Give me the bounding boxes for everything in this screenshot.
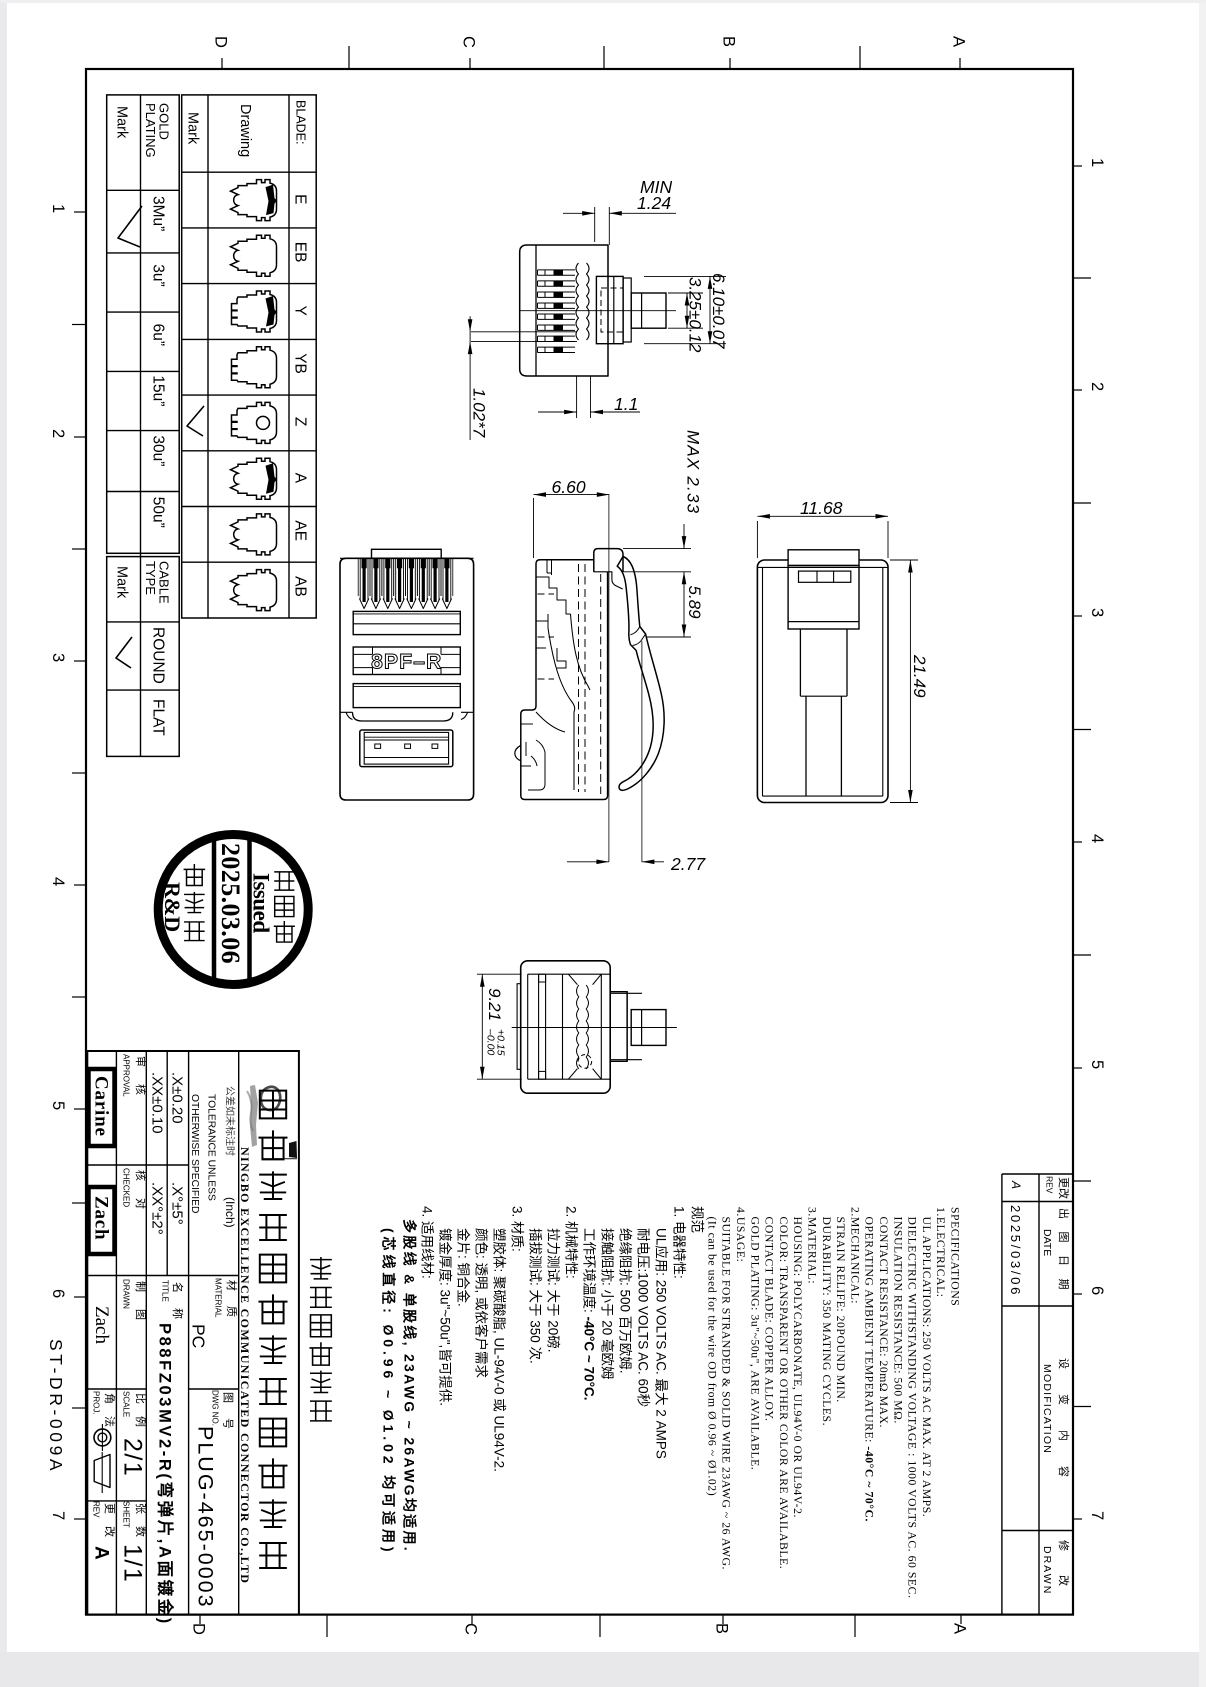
svg-text:Y: Y <box>292 306 309 316</box>
svg-text:30u”: 30u” <box>150 435 167 466</box>
svg-text:出图日期: 出图日期 <box>1057 1208 1071 1302</box>
svg-text:5: 5 <box>49 1101 67 1110</box>
svg-text:DIELECTRIC WITHSTANDING VOLTAG: DIELECTRIC WITHSTANDING VOLTAGE : 1000 V… <box>906 1217 919 1599</box>
svg-text:PROJ.: PROJ. <box>92 1391 101 1415</box>
svg-text:6u”: 6u” <box>150 324 167 346</box>
svg-text:材质: 材质 <box>225 1280 239 1332</box>
svg-text:多股线 & 单股线, 23AWG ~ 26AWG均适用.: 多股线 & 单股线, 23AWG ~ 26AWG均适用. <box>402 1219 418 1553</box>
svg-text:NINGBO EXCELLENCE COMMUNICATED: NINGBO EXCELLENCE COMMUNICATED CONNECTOR… <box>238 1147 252 1584</box>
svg-text:REV: REV <box>1045 1176 1055 1194</box>
svg-text:4. 适用线材:: 4. 适用线材: <box>420 1206 435 1279</box>
svg-text:3u”: 3u” <box>150 264 167 286</box>
svg-text:耐电压:1000 VOLTS AC. 60秒: 耐电压:1000 VOLTS AC. 60秒 <box>636 1228 651 1407</box>
svg-text:6.60: 6.60 <box>552 477 586 497</box>
svg-text:3.MATERIAL:: 3.MATERIAL: <box>806 1207 819 1284</box>
svg-text:B: B <box>713 1623 731 1634</box>
svg-text:11.68: 11.68 <box>800 498 843 518</box>
svg-text:DATE: DATE <box>1041 1229 1053 1256</box>
svg-text:PLATING: PLATING <box>143 103 158 158</box>
svg-text:REV: REV <box>92 1501 101 1518</box>
svg-text:.XX±0.10: .XX±0.10 <box>149 1072 166 1134</box>
svg-text:A: A <box>292 473 309 484</box>
svg-text:SPECIFICATIONS: SPECIFICATIONS <box>949 1207 962 1306</box>
svg-text:3. 材质:: 3. 材质: <box>510 1206 525 1252</box>
svg-text:修改: 修改 <box>1057 1540 1071 1610</box>
svg-text:C: C <box>460 36 478 48</box>
svg-text:R&D: R&D <box>160 882 185 932</box>
svg-text:FLAT: FLAT <box>150 699 167 736</box>
svg-text:7: 7 <box>49 1511 67 1520</box>
svg-text:(Inch): (Inch) <box>223 1197 237 1228</box>
svg-text:STRAIN RELIFE: 20POUND MIN.: STRAIN RELIFE: 20POUND MIN. <box>834 1217 847 1403</box>
svg-text:DRAWN: DRAWN <box>1041 1546 1053 1595</box>
svg-text:2.MECHANICAL:: 2.MECHANICAL: <box>848 1207 861 1304</box>
svg-text:INSULATION RESISTANCE: 500 MΩ.: INSULATION RESISTANCE: 500 MΩ. <box>891 1217 904 1424</box>
svg-text:C: C <box>462 1623 480 1635</box>
svg-text:Mark: Mark <box>185 112 201 145</box>
svg-text:CONTACT RESISTANCE: 20mΩ MAX.: CONTACT RESISTANCE: 20mΩ MAX. <box>877 1217 890 1429</box>
svg-text:.X±0.20: .X±0.20 <box>169 1072 186 1124</box>
svg-text:5: 5 <box>1088 1060 1106 1069</box>
svg-text:接触阻抗: 小于 20 毫欧姆: 接触阻抗: 小于 20 毫欧姆 <box>600 1228 616 1380</box>
svg-text:Z: Z <box>292 417 309 426</box>
svg-text:6: 6 <box>49 1289 67 1298</box>
svg-text:TYPE: TYPE <box>143 561 158 595</box>
svg-text:BLADE:: BLADE: <box>294 100 308 144</box>
svg-text:1/1: 1/1 <box>119 1544 147 1583</box>
svg-text:D: D <box>190 1623 208 1635</box>
svg-text:MAX 2.33: MAX 2.33 <box>684 430 703 514</box>
svg-text:更改: 更改 <box>103 1503 117 1549</box>
svg-text:HOUSING: POLYCARBONATE, UL94V-: HOUSING: POLYCARBONATE, UL94V-0 OR UL94V… <box>791 1217 804 1518</box>
svg-text:张数: 张数 <box>134 1503 147 1549</box>
svg-text:2/1: 2/1 <box>119 1438 147 1477</box>
svg-text:Drawing: Drawing <box>237 104 253 157</box>
svg-text:YB: YB <box>292 353 309 374</box>
svg-text:MATERIAL: MATERIAL <box>214 1278 223 1318</box>
svg-text:制图: 制图 <box>134 1281 147 1337</box>
svg-text:GOLD PLATING: 3u"~50u", ARE AV: GOLD PLATING: 3u"~50u", ARE AVAILABLE. <box>748 1217 761 1471</box>
svg-text:1: 1 <box>49 204 67 213</box>
svg-text:ROUND: ROUND <box>150 627 167 684</box>
svg-text:P88FZ03MV2-R(弯弹片,A面镀金): P88FZ03MV2-R(弯弹片,A面镀金) <box>156 1323 176 1626</box>
svg-text:9.21: 9.21 <box>485 988 504 1021</box>
svg-text:审核: 审核 <box>134 1056 148 1112</box>
svg-text:B: B <box>720 36 738 47</box>
svg-text:A: A <box>91 1546 112 1560</box>
svg-text:CHECKED: CHECKED <box>122 1168 131 1207</box>
svg-text:A: A <box>950 36 968 47</box>
svg-text:3.25±0.12: 3.25±0.12 <box>686 277 705 353</box>
svg-text:UL应用: 250 VOLTS AC. 最大 2 AMPS: UL应用: 250 VOLTS AC. 最大 2 AMPS <box>654 1228 670 1459</box>
svg-text:A: A <box>1009 1180 1023 1189</box>
svg-text:DURABILITY: 350 MATING CYCLES.: DURABILITY: 350 MATING CYCLES. <box>820 1217 833 1427</box>
svg-text:ST-DR-009A: ST-DR-009A <box>46 1339 66 1474</box>
svg-text:CONTACT BLADE: COPPER ALLOY.: CONTACT BLADE: COPPER ALLOY. <box>763 1217 776 1422</box>
svg-text:Mark: Mark <box>114 106 130 139</box>
svg-text:设变内容: 设变内容 <box>1057 1358 1071 1502</box>
svg-text:APPROVAL: APPROVAL <box>122 1054 131 1097</box>
svg-text:核对: 核对 <box>134 1170 148 1226</box>
svg-text:图号: 图号 <box>222 1392 235 1444</box>
svg-text:金片: 铜合金.: 金片: 铜合金. <box>456 1228 471 1307</box>
svg-text:AB: AB <box>292 576 309 597</box>
svg-text:颜色: 透明, 或依客户需求: 颜色: 透明, 或依客户需求 <box>474 1228 490 1379</box>
svg-text:MODIFICATION: MODIFICATION <box>1041 1364 1053 1454</box>
svg-text:PLUG-465-0003: PLUG-465-0003 <box>194 1426 218 1609</box>
svg-text:OTHERWISE SPECIFIED: OTHERWISE SPECIFIED <box>189 1094 200 1213</box>
svg-text:6.10±0.07: 6.10±0.07 <box>709 273 728 349</box>
svg-text:Issued: Issued <box>249 873 274 933</box>
svg-text:比例: 比例 <box>134 1393 148 1439</box>
svg-text:.XX°±2°: .XX°±2° <box>149 1182 166 1235</box>
svg-text:1.24: 1.24 <box>637 193 671 213</box>
svg-text:4.USAGE:: 4.USAGE: <box>734 1207 747 1262</box>
svg-text:(芯线直径: Ø0.96 ~ Ø1.02 均可适用): (芯线直径: Ø0.96 ~ Ø1.02 均可适用) <box>381 1228 397 1555</box>
svg-text:公差如未标注时: 公差如未标注时 <box>224 1086 237 1156</box>
svg-text:2025/03/06: 2025/03/06 <box>1008 1205 1023 1297</box>
svg-text:角法: 角法 <box>103 1393 117 1439</box>
svg-text:1. 电器特性:: 1. 电器特性: <box>672 1206 687 1279</box>
svg-text:DWG NO.: DWG NO. <box>211 1390 220 1426</box>
svg-text:绝缘阻抗: 500 百万欧姆.: 绝缘阻抗: 500 百万欧姆. <box>618 1228 633 1374</box>
svg-text:3: 3 <box>49 653 67 662</box>
svg-text:DRAWN: DRAWN <box>122 1279 131 1309</box>
svg-text:2025.03.06: 2025.03.06 <box>216 843 245 964</box>
svg-text:3: 3 <box>1088 608 1106 617</box>
svg-text:E: E <box>292 194 309 204</box>
svg-text:2.77: 2.77 <box>670 854 706 874</box>
svg-text:.X°±5°: .X°±5° <box>169 1182 186 1225</box>
svg-text:–0.00: –0.00 <box>485 1028 497 1055</box>
svg-text:(It can be used for the wire O: (It can be used for the wire OD from Ø 0… <box>705 1217 718 1497</box>
svg-text:Zach: Zach <box>91 1196 112 1240</box>
svg-text:UL APPLICATIONS: 250 VOLTS AC: UL APPLICATIONS: 250 VOLTS AC MAX. AT 2 … <box>920 1217 933 1518</box>
svg-text:SUITABLE FOR STRANDED & SOLID: SUITABLE FOR STRANDED & SOLID WIRE 23AWG… <box>720 1217 733 1571</box>
svg-text:2: 2 <box>49 429 67 438</box>
svg-text:3Mu”: 3Mu” <box>150 196 167 231</box>
svg-text:2: 2 <box>1088 382 1106 391</box>
svg-text:A: A <box>951 1623 969 1634</box>
svg-text:7: 7 <box>1088 1511 1106 1520</box>
svg-text:SHEET: SHEET <box>122 1501 131 1528</box>
svg-text:插拔测试: 大于 350 次.: 插拔测试: 大于 350 次. <box>528 1228 543 1364</box>
svg-text:TITLE: TITLE <box>161 1280 170 1302</box>
svg-text:8PF–R: 8PF–R <box>371 651 442 674</box>
svg-text:PC: PC <box>189 1324 209 1348</box>
svg-text:D: D <box>212 36 230 48</box>
svg-text:2. 机械特性:: 2. 机械特性: <box>564 1206 579 1279</box>
svg-text:1: 1 <box>1088 158 1106 167</box>
svg-text:TOLERANCE UNLESS: TOLERANCE UNLESS <box>206 1094 217 1201</box>
svg-text:COLOR: TRANSPARENT OR OTHER CO: COLOR: TRANSPARENT OR OTHER COLOR ARE AV… <box>777 1217 790 1570</box>
svg-text:SCALE: SCALE <box>122 1391 131 1417</box>
svg-text:15u”: 15u” <box>150 375 167 406</box>
svg-text:1.1: 1.1 <box>614 394 638 414</box>
svg-text:6: 6 <box>1088 1286 1106 1295</box>
svg-text:工作环境温度: -40°C ~ 70°C.: 工作环境温度: -40°C ~ 70°C. <box>582 1228 597 1400</box>
svg-text:1.ELECTRICAL:: 1.ELECTRICAL: <box>934 1207 947 1298</box>
svg-text:拉力测试: 大于 20磅.: 拉力测试: 大于 20磅. <box>546 1228 562 1353</box>
svg-text:AE: AE <box>292 520 309 541</box>
svg-text:50u”: 50u” <box>150 497 167 528</box>
svg-text:更改: 更改 <box>1057 1177 1071 1199</box>
svg-text:21.49: 21.49 <box>910 654 929 698</box>
svg-text:1.02*7: 1.02*7 <box>470 388 489 438</box>
svg-text:Zach: Zach <box>91 1306 112 1344</box>
svg-text:OPERATING AMBIENT TEMPERATURE:: OPERATING AMBIENT TEMPERATURE: -40°C ~ 7… <box>863 1217 876 1522</box>
svg-text:Mark: Mark <box>114 566 130 599</box>
svg-text:EB: EB <box>292 242 309 263</box>
svg-text:Carine: Carine <box>91 1076 112 1137</box>
svg-text:4: 4 <box>1088 834 1106 843</box>
svg-text:规范: 规范 <box>690 1206 705 1233</box>
svg-text:塑胶体: 聚碳酸脂, UL-94V-0 或 UL94V-2.: 塑胶体: 聚碳酸脂, UL-94V-0 或 UL94V-2. <box>492 1228 508 1472</box>
svg-text:4: 4 <box>49 877 67 886</box>
svg-text:镀金厚度: 3u"~50u",皆可提供.: 镀金厚度: 3u"~50u",皆可提供. <box>438 1228 454 1406</box>
svg-text:5.89: 5.89 <box>685 586 704 620</box>
